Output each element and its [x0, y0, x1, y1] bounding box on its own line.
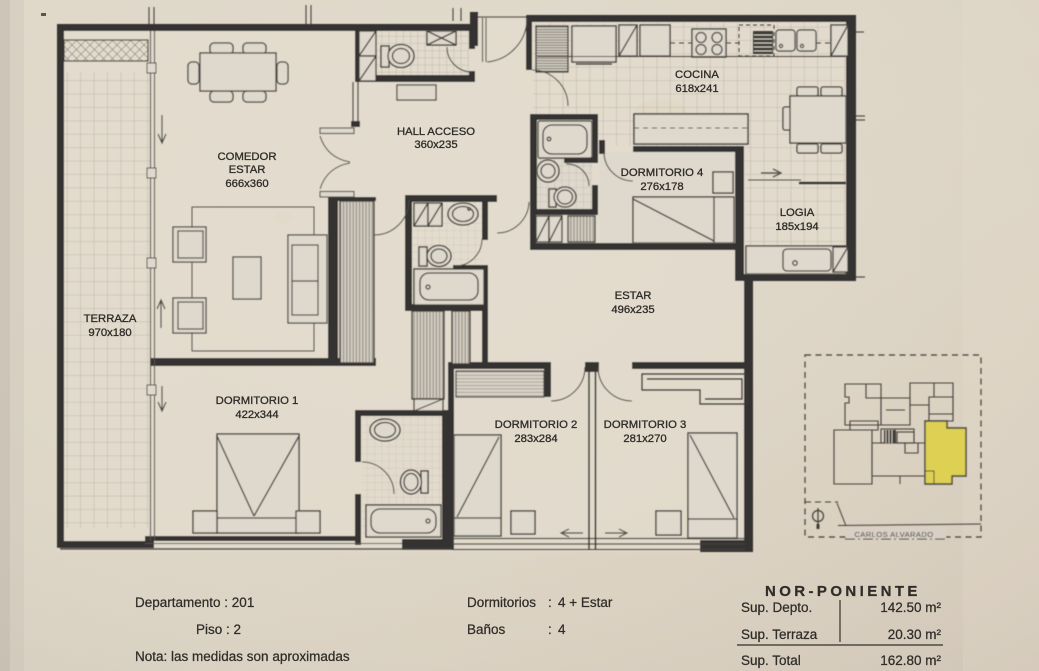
svg-text:TERRAZA: TERRAZA	[84, 313, 137, 325]
svg-text:Baños: Baños	[467, 622, 506, 637]
svg-text:4: 4	[558, 622, 566, 637]
svg-text:4 + Estar: 4 + Estar	[558, 595, 613, 610]
svg-text:496x235: 496x235	[611, 304, 654, 316]
svg-text:Sup. Depto.: Sup. Depto.	[741, 600, 812, 615]
svg-text:DORMITORIO 3: DORMITORIO 3	[604, 419, 687, 431]
svg-text:HALL ACCESO: HALL ACCESO	[397, 126, 475, 138]
svg-text:Dormitorios: Dormitorios	[467, 595, 536, 610]
svg-text:276x178: 276x178	[640, 181, 683, 193]
svg-text:ESTAR: ESTAR	[229, 164, 266, 176]
svg-text:283x284: 283x284	[514, 433, 557, 445]
svg-text:Sup. Total: Sup. Total	[741, 653, 801, 668]
svg-text:COCINA: COCINA	[675, 69, 719, 81]
svg-text:618x241: 618x241	[675, 83, 718, 95]
svg-text:DORMITORIO 4: DORMITORIO 4	[621, 167, 704, 179]
svg-text:360x235: 360x235	[414, 139, 457, 151]
svg-text:COMEDOR: COMEDOR	[218, 151, 277, 163]
svg-text:666x360: 666x360	[225, 178, 268, 190]
svg-text::: :	[548, 622, 552, 637]
svg-text::: :	[548, 595, 552, 610]
svg-text:281x270: 281x270	[623, 433, 666, 445]
svg-text:422x344: 422x344	[235, 409, 278, 421]
svg-text:DORMITORIO 2: DORMITORIO 2	[495, 419, 578, 431]
svg-text:142.50 m²: 142.50 m²	[880, 600, 941, 615]
svg-text:ESTAR: ESTAR	[615, 290, 652, 302]
svg-text:CARLOS ALVARADO: CARLOS ALVARADO	[854, 530, 933, 539]
svg-text:162.80 m²: 162.80 m²	[880, 653, 941, 668]
svg-text:Nota: las medidas son aproxima: Nota: las medidas son aproximadas	[135, 649, 350, 664]
svg-text:NOR-PONIENTE: NOR-PONIENTE	[765, 583, 921, 600]
svg-text:Sup. Terraza: Sup. Terraza	[741, 627, 818, 642]
svg-text:DORMITORIO 1: DORMITORIO 1	[216, 395, 299, 407]
svg-text:Piso : 2: Piso : 2	[196, 622, 241, 637]
svg-text:185x194: 185x194	[775, 221, 818, 233]
svg-text:20.30 m²: 20.30 m²	[888, 627, 942, 642]
svg-text:Departamento : 201: Departamento : 201	[135, 595, 254, 610]
svg-text:970x180: 970x180	[88, 327, 131, 339]
svg-text:LOGIA: LOGIA	[780, 207, 815, 219]
